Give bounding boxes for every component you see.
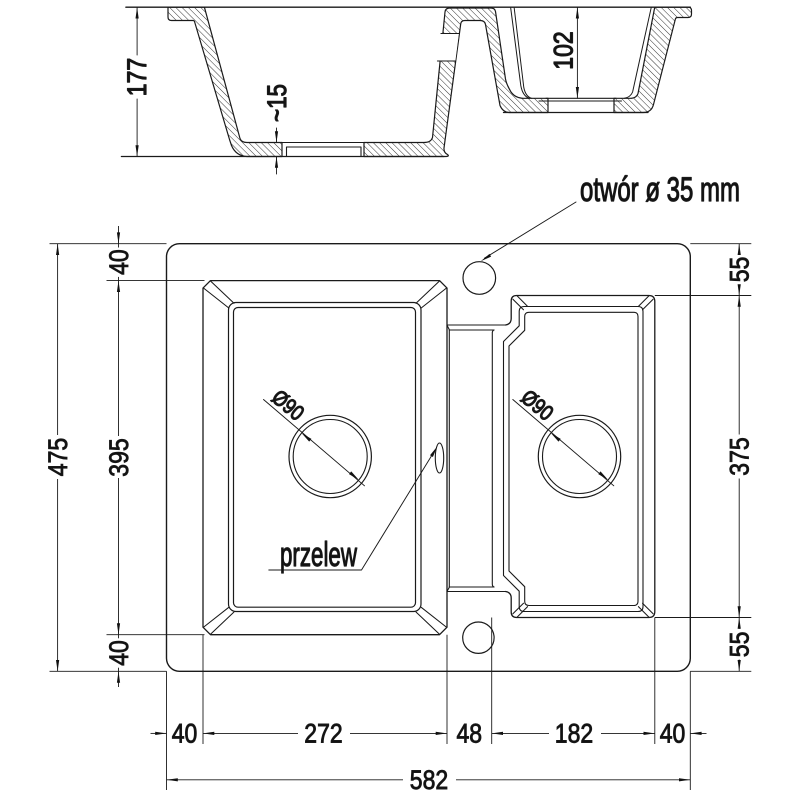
svg-text:40: 40	[104, 640, 134, 666]
svg-text:272: 272	[304, 719, 342, 749]
svg-text:40: 40	[104, 249, 134, 275]
svg-text:582: 582	[410, 765, 448, 795]
svg-text:182: 182	[555, 719, 593, 749]
svg-text:55: 55	[725, 632, 755, 658]
svg-text:otwór ø 35 mm: otwór ø 35 mm	[580, 171, 740, 209]
svg-text:475: 475	[43, 438, 73, 476]
svg-text:375: 375	[725, 437, 755, 475]
svg-text:177: 177	[122, 58, 152, 96]
svg-text:~15: ~15	[262, 84, 292, 122]
svg-text:395: 395	[104, 438, 134, 476]
svg-text:przelew: przelew	[280, 536, 357, 574]
svg-text:48: 48	[457, 719, 483, 749]
svg-text:40: 40	[660, 719, 686, 749]
svg-text:102: 102	[549, 31, 579, 69]
svg-text:55: 55	[725, 257, 755, 283]
svg-text:40: 40	[172, 719, 198, 749]
